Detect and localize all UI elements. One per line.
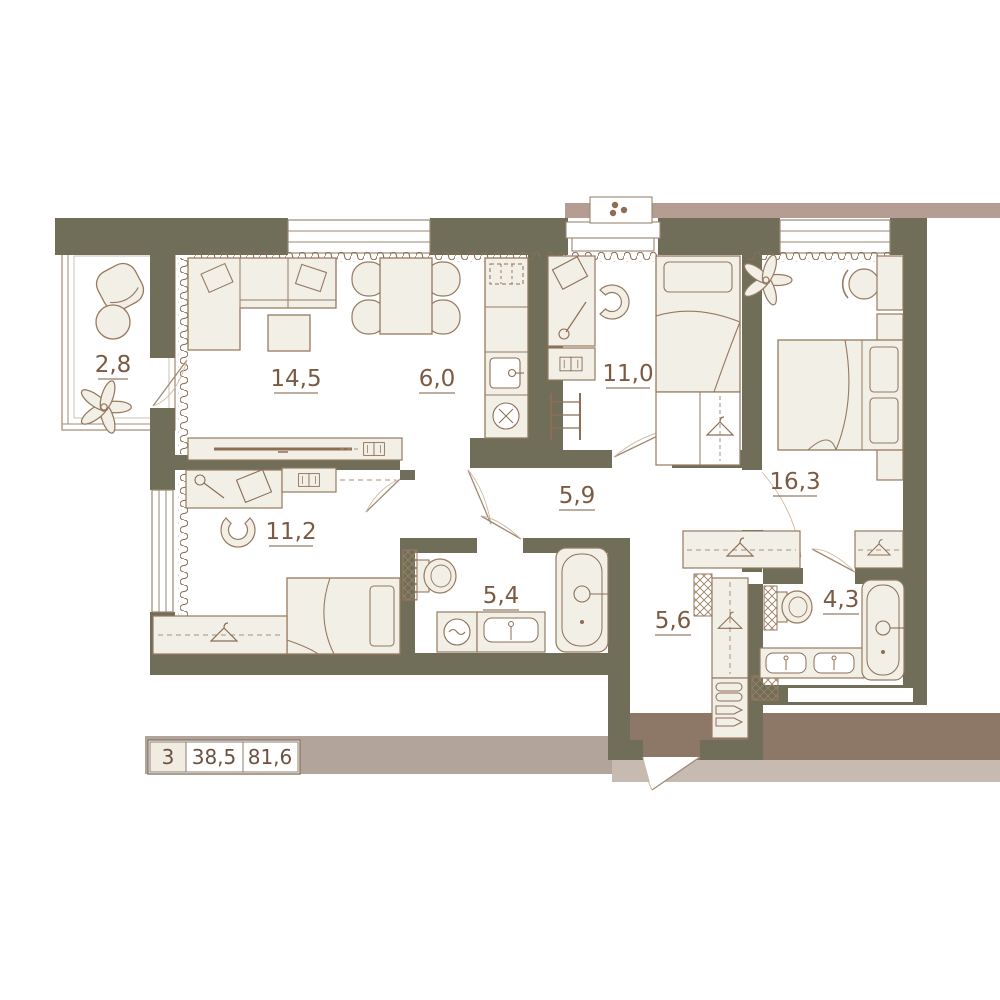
book-icon — [299, 474, 320, 487]
wall-niche — [788, 688, 913, 702]
duct-icon — [694, 574, 712, 616]
kitchen-furniture — [485, 258, 528, 438]
floor-plan: 2,8 14,5 6,0 11,0 16,3 11,2 5,9 5,4 5,6 … — [0, 0, 1000, 1000]
legend: 3 38,5 81,6 — [148, 740, 300, 774]
double-sink-icon — [760, 648, 864, 678]
legend-rooms-count: 3 — [162, 745, 175, 769]
wardrobe-icon — [153, 616, 287, 654]
book-icon — [364, 443, 385, 456]
label-entry: 5,6 — [655, 608, 692, 634]
floorplan-canvas: 2,8 14,5 6,0 11,0 16,3 11,2 5,9 5,4 5,6 … — [0, 0, 1000, 1000]
door-living-hall — [468, 470, 491, 524]
toilet-icon — [417, 559, 456, 593]
window-master — [780, 220, 890, 253]
window-bedroom2 — [152, 490, 173, 612]
label-hallway: 5,9 — [559, 483, 596, 509]
door-bathroom2 — [812, 549, 855, 572]
dining-set-icon — [352, 258, 460, 334]
label-bathroom: 5,4 — [483, 583, 520, 609]
vent-dot — [621, 207, 627, 213]
label-bedroom1: 11,0 — [602, 361, 653, 387]
legend-total-area: 81,6 — [248, 745, 293, 769]
tv-console-icon — [188, 438, 402, 460]
label-balcony: 2,8 — [95, 352, 132, 378]
shoe-rack-icon — [712, 678, 748, 738]
kitchen-sink-icon — [490, 358, 524, 388]
bedroom2-furniture — [153, 468, 400, 654]
bed-double-icon — [778, 340, 903, 450]
chair-icon — [600, 285, 629, 319]
bathtub-icon — [862, 580, 904, 680]
bathtub-icon — [556, 548, 608, 652]
toilet-icon — [777, 591, 812, 623]
vanity-mirror-icon — [843, 269, 879, 299]
toilet-tank-icon — [403, 550, 417, 600]
chair-icon — [221, 518, 255, 547]
window-living — [288, 220, 430, 253]
round-table-icon — [96, 305, 130, 339]
closet-master-right — [855, 531, 903, 568]
vent-dot — [610, 210, 616, 216]
coffee-table-icon — [268, 315, 310, 351]
legend-living-area: 38,5 — [192, 745, 237, 769]
hob-icon — [493, 403, 519, 429]
context-band-bottom-dark — [612, 713, 1000, 760]
duct-icon — [752, 676, 778, 700]
washing-machine-icon — [437, 612, 477, 652]
book-icon — [560, 357, 582, 371]
label-bedroom2: 11,2 — [265, 519, 316, 545]
toilet-tank-icon — [764, 586, 777, 630]
closet-master-left — [683, 531, 800, 568]
label-living: 14,5 — [270, 366, 321, 392]
sink-vanity-icon — [477, 612, 545, 652]
bed-single-icon — [656, 256, 740, 392]
living-furniture — [188, 258, 460, 460]
label-master: 16,3 — [769, 469, 820, 495]
closet-icon — [656, 392, 740, 465]
label-bathroom2: 4,3 — [823, 587, 860, 613]
entry-closet-icon — [712, 578, 748, 678]
bed-single-icon — [287, 578, 400, 654]
label-kitchen: 6,0 — [419, 366, 456, 392]
door-bathroom — [481, 516, 521, 539]
vent-dot — [612, 202, 618, 208]
door-bedroom2 — [366, 479, 400, 512]
